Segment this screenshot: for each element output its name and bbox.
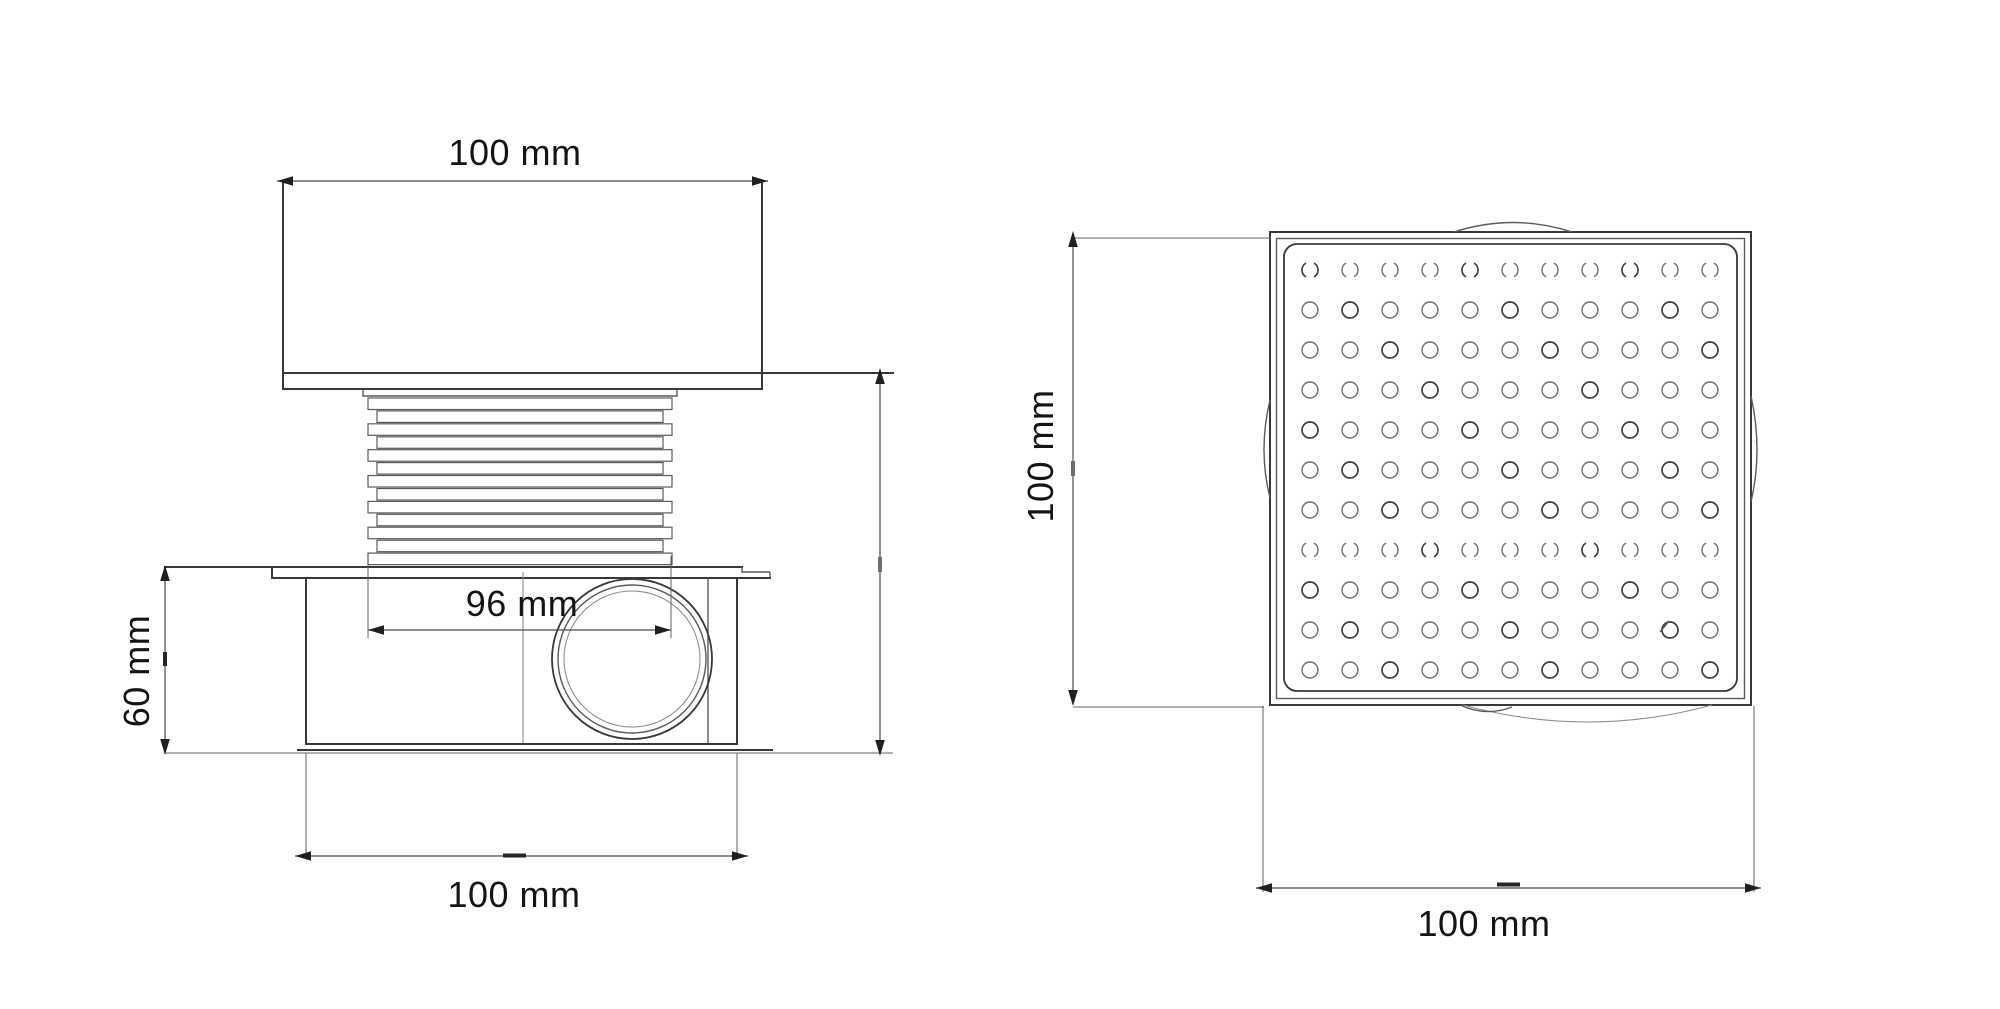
arrow-right-icon	[655, 625, 671, 635]
grate-hole-slotted	[1622, 263, 1638, 277]
grate-hole	[1422, 582, 1438, 598]
grate-hole	[1382, 422, 1398, 438]
top-tab-arc	[1454, 223, 1572, 233]
grate-hole	[1342, 422, 1358, 438]
grate-hole	[1542, 422, 1558, 438]
grate-hole	[1422, 342, 1438, 358]
grate-hole	[1342, 502, 1358, 518]
grate-hole	[1462, 302, 1478, 318]
grate-hole	[1342, 382, 1358, 398]
arrow-left-icon	[277, 176, 293, 186]
arrow-right-icon	[1745, 883, 1761, 893]
thread-ring	[377, 514, 663, 526]
grate-hole	[1382, 502, 1398, 518]
dim-cap-width: 100 mm	[277, 132, 768, 186]
grate-hole	[1702, 462, 1718, 478]
dim-grate-width-label: 100 mm	[1417, 903, 1550, 944]
grate-hole	[1502, 662, 1518, 678]
grate-hole	[1582, 662, 1598, 678]
thread-ring	[377, 540, 663, 552]
grate-hole	[1542, 382, 1558, 398]
grate-hole-slotted	[1302, 263, 1318, 277]
grate-hole	[1702, 622, 1718, 638]
grate-hole	[1702, 382, 1718, 398]
grate-hole	[1342, 662, 1358, 678]
grate-hole	[1382, 582, 1398, 598]
drawing-canvas: 100 mm 96 mm 60 mm 100 mm	[0, 0, 2000, 1009]
grate-hole	[1582, 422, 1598, 438]
drain-cap	[283, 181, 893, 396]
grate-hole-slotted	[1662, 543, 1678, 557]
scan-artifact-mark	[1660, 621, 1669, 632]
arrow-down-icon	[1068, 690, 1078, 706]
grate-hole	[1582, 382, 1598, 398]
grate-hole	[1702, 302, 1718, 318]
dim-overall-height	[165, 368, 893, 756]
grate-hole-slotted	[1582, 543, 1598, 557]
grate-hole	[1702, 342, 1718, 358]
arrow-down-icon	[875, 740, 885, 756]
grate-hole	[1462, 422, 1478, 438]
grate-hole	[1462, 662, 1478, 678]
side-view: 100 mm 96 mm 60 mm 100 mm	[116, 132, 893, 915]
dim-body-width: 100 mm	[295, 753, 748, 915]
thread-ring	[377, 411, 663, 423]
grate-hole	[1302, 582, 1318, 598]
grate-hole-slotted	[1422, 543, 1438, 557]
grate-hole	[1342, 622, 1358, 638]
grate-hole-slotted	[1542, 543, 1558, 557]
grate-hole	[1422, 622, 1438, 638]
arrow-up-icon	[1068, 231, 1078, 247]
grate-hole	[1542, 302, 1558, 318]
grate-hole	[1462, 462, 1478, 478]
grate-hole	[1422, 382, 1438, 398]
thread-ring	[368, 501, 672, 513]
grate-hole	[1622, 342, 1638, 358]
top-view: 100 mm 100 mm	[1020, 223, 1761, 945]
grate-holes	[1302, 263, 1718, 678]
grate-hole-slotted	[1702, 543, 1718, 557]
grate-hole	[1582, 342, 1598, 358]
grate-hole	[1302, 382, 1318, 398]
thread-ring	[377, 437, 663, 449]
grate-hole	[1462, 382, 1478, 398]
dim-body-height: 60 mm	[116, 565, 170, 755]
grate-hole	[1622, 462, 1638, 478]
grate-hole	[1622, 422, 1638, 438]
grate-hole	[1502, 582, 1518, 598]
grate-hole	[1382, 382, 1398, 398]
grate-hole	[1662, 342, 1678, 358]
arrow-left-icon	[1256, 883, 1272, 893]
grate-hole-slotted	[1462, 543, 1478, 557]
grate-hole-slotted	[1342, 263, 1358, 277]
grate-hole	[1662, 462, 1678, 478]
grate-hole-slotted	[1542, 263, 1558, 277]
grate-hole	[1342, 342, 1358, 358]
flange-plate	[165, 567, 770, 578]
grate-hole	[1662, 582, 1678, 598]
grate-hole	[1662, 302, 1678, 318]
dim-body-height-label: 60 mm	[116, 615, 157, 728]
grate-hole	[1502, 422, 1518, 438]
dim-grate-height-label: 100 mm	[1020, 389, 1061, 522]
grate-hole	[1302, 302, 1318, 318]
dim-riser-width: 96 mm	[368, 556, 671, 638]
grate-hole	[1702, 662, 1718, 678]
grate-hole-slotted	[1342, 543, 1358, 557]
grate-hole-slotted	[1462, 263, 1478, 277]
grate-hole	[1582, 462, 1598, 478]
grate-hole	[1502, 382, 1518, 398]
grate-hole	[1502, 302, 1518, 318]
grate-hole	[1342, 302, 1358, 318]
grate-hole	[1502, 462, 1518, 478]
dim-cap-width-label: 100 mm	[448, 132, 581, 173]
grate-hole-slotted	[1382, 263, 1398, 277]
grate-hole	[1422, 462, 1438, 478]
grate-hole	[1502, 342, 1518, 358]
thread-ring	[368, 553, 672, 565]
grate-hole-slotted	[1382, 543, 1398, 557]
grate-hole	[1382, 622, 1398, 638]
grate-hole	[1302, 462, 1318, 478]
grate-hole	[1462, 342, 1478, 358]
grate-frame	[1264, 223, 1757, 723]
grate-hole-slotted	[1302, 543, 1318, 557]
grate-hole	[1542, 502, 1558, 518]
dim-grate-height: 100 mm	[1020, 231, 1271, 707]
grate-hole	[1302, 502, 1318, 518]
grate-hole-slotted	[1502, 543, 1518, 557]
grate-hole	[1622, 302, 1638, 318]
thread-ring	[368, 476, 672, 488]
grate-hole	[1422, 302, 1438, 318]
grate-hole	[1702, 582, 1718, 598]
grate-hole-slotted	[1422, 263, 1438, 277]
grate-hole	[1662, 622, 1678, 638]
grate-hole	[1662, 662, 1678, 678]
grate-hole	[1302, 342, 1318, 358]
grate-hole	[1622, 622, 1638, 638]
grate-hole	[1462, 502, 1478, 518]
arrow-up-icon	[875, 368, 885, 384]
bottom-tab-arc	[1463, 705, 1712, 722]
grate-hole	[1582, 622, 1598, 638]
arrow-left-icon	[295, 851, 311, 861]
arrow-left-icon	[368, 625, 384, 635]
grate-hole	[1382, 302, 1398, 318]
grate-hole	[1582, 302, 1598, 318]
grate-hole	[1302, 622, 1318, 638]
grate-hole	[1302, 422, 1318, 438]
threaded-riser	[368, 398, 672, 565]
grate-hole	[1622, 382, 1638, 398]
grate-hole	[1502, 502, 1518, 518]
thread-ring	[377, 489, 663, 501]
dim-riser-width-label: 96 mm	[466, 583, 579, 624]
arrow-right-icon	[732, 851, 748, 861]
grate-hole	[1702, 422, 1718, 438]
grate-hole	[1542, 462, 1558, 478]
grate-hole	[1542, 662, 1558, 678]
grate-hole	[1582, 502, 1598, 518]
grate-hole-slotted	[1702, 263, 1718, 277]
grate-hole-slotted	[1502, 263, 1518, 277]
thread-ring	[368, 424, 672, 436]
grate-hole	[1342, 582, 1358, 598]
grate-hole	[1662, 422, 1678, 438]
grate-hole	[1382, 662, 1398, 678]
grate-hole	[1582, 582, 1598, 598]
grate-hole	[1462, 582, 1478, 598]
arrow-right-icon	[752, 176, 768, 186]
grate-hole	[1422, 502, 1438, 518]
grate-hole	[1462, 622, 1478, 638]
grate-hole	[1302, 662, 1318, 678]
grate-hole	[1542, 582, 1558, 598]
dim-body-width-label: 100 mm	[447, 874, 580, 915]
grate-hole	[1622, 582, 1638, 598]
thread-ring	[368, 398, 672, 410]
grate-hole	[1702, 502, 1718, 518]
grate-hole	[1662, 382, 1678, 398]
grate-hole	[1542, 622, 1558, 638]
grate-hole-slotted	[1582, 263, 1598, 277]
grate-hole	[1422, 662, 1438, 678]
grate-hole	[1622, 662, 1638, 678]
grate-hole	[1622, 502, 1638, 518]
grate-hole	[1502, 622, 1518, 638]
grate-hole	[1382, 342, 1398, 358]
dim-grate-width: 100 mm	[1256, 706, 1761, 944]
thread-ring	[368, 450, 672, 462]
grate-hole	[1382, 462, 1398, 478]
grate-hole-slotted	[1622, 543, 1638, 557]
grate-hole	[1662, 502, 1678, 518]
grate-hole-slotted	[1662, 263, 1678, 277]
grate-hole	[1542, 342, 1558, 358]
thread-ring	[368, 527, 672, 539]
thread-ring	[377, 463, 663, 475]
grate-hole	[1422, 422, 1438, 438]
grate-hole	[1342, 462, 1358, 478]
